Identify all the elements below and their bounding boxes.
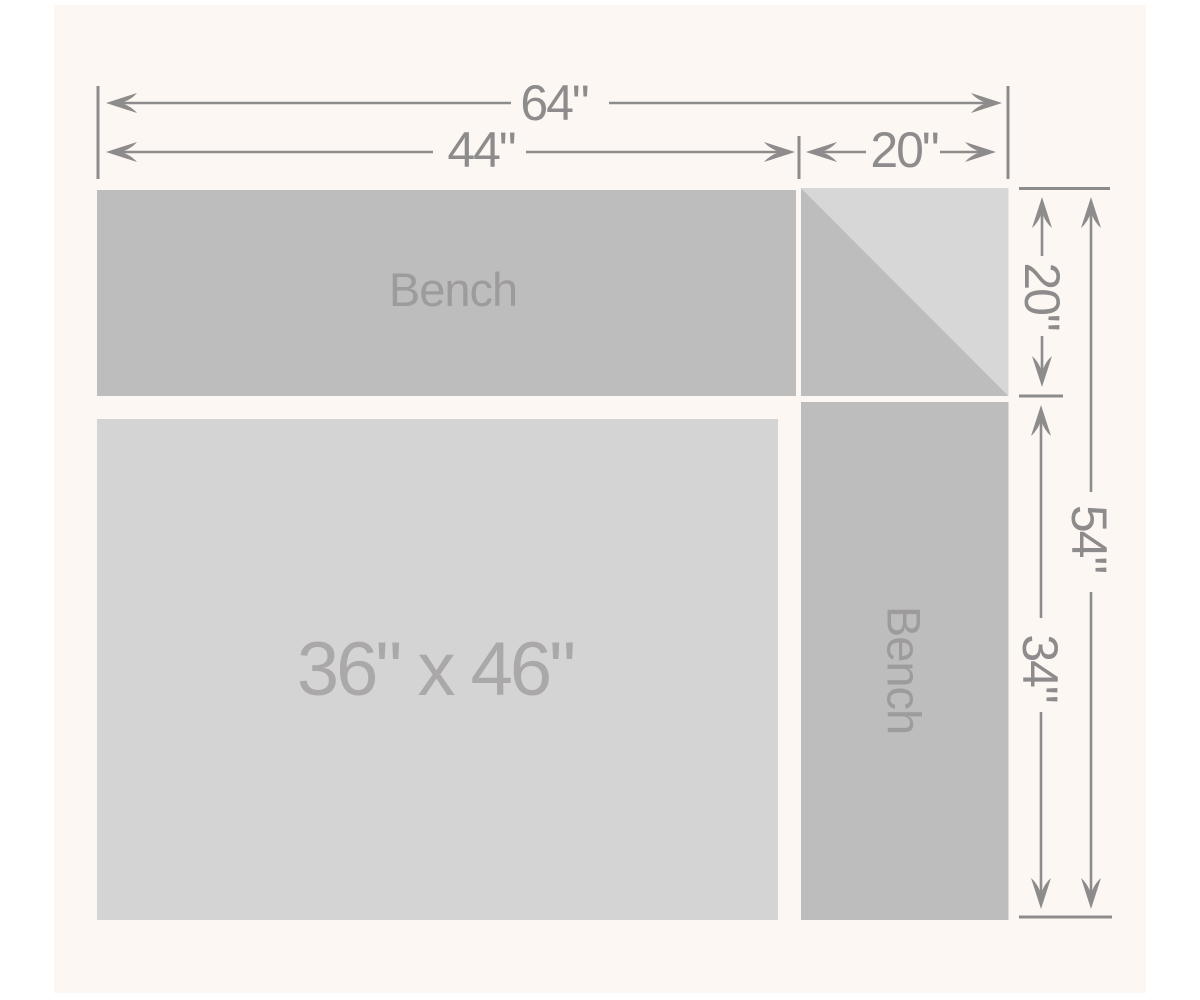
svg-text:54": 54" [1061, 505, 1117, 573]
svg-text:Bench: Bench [389, 263, 517, 316]
svg-text:20": 20" [1014, 262, 1070, 330]
svg-text:64": 64" [520, 75, 588, 131]
svg-text:36" x 46": 36" x 46" [297, 627, 573, 712]
svg-text:Bench: Bench [878, 606, 931, 734]
svg-text:44": 44" [447, 122, 515, 178]
svg-text:20": 20" [870, 122, 938, 178]
svg-text:34": 34" [1012, 634, 1068, 702]
